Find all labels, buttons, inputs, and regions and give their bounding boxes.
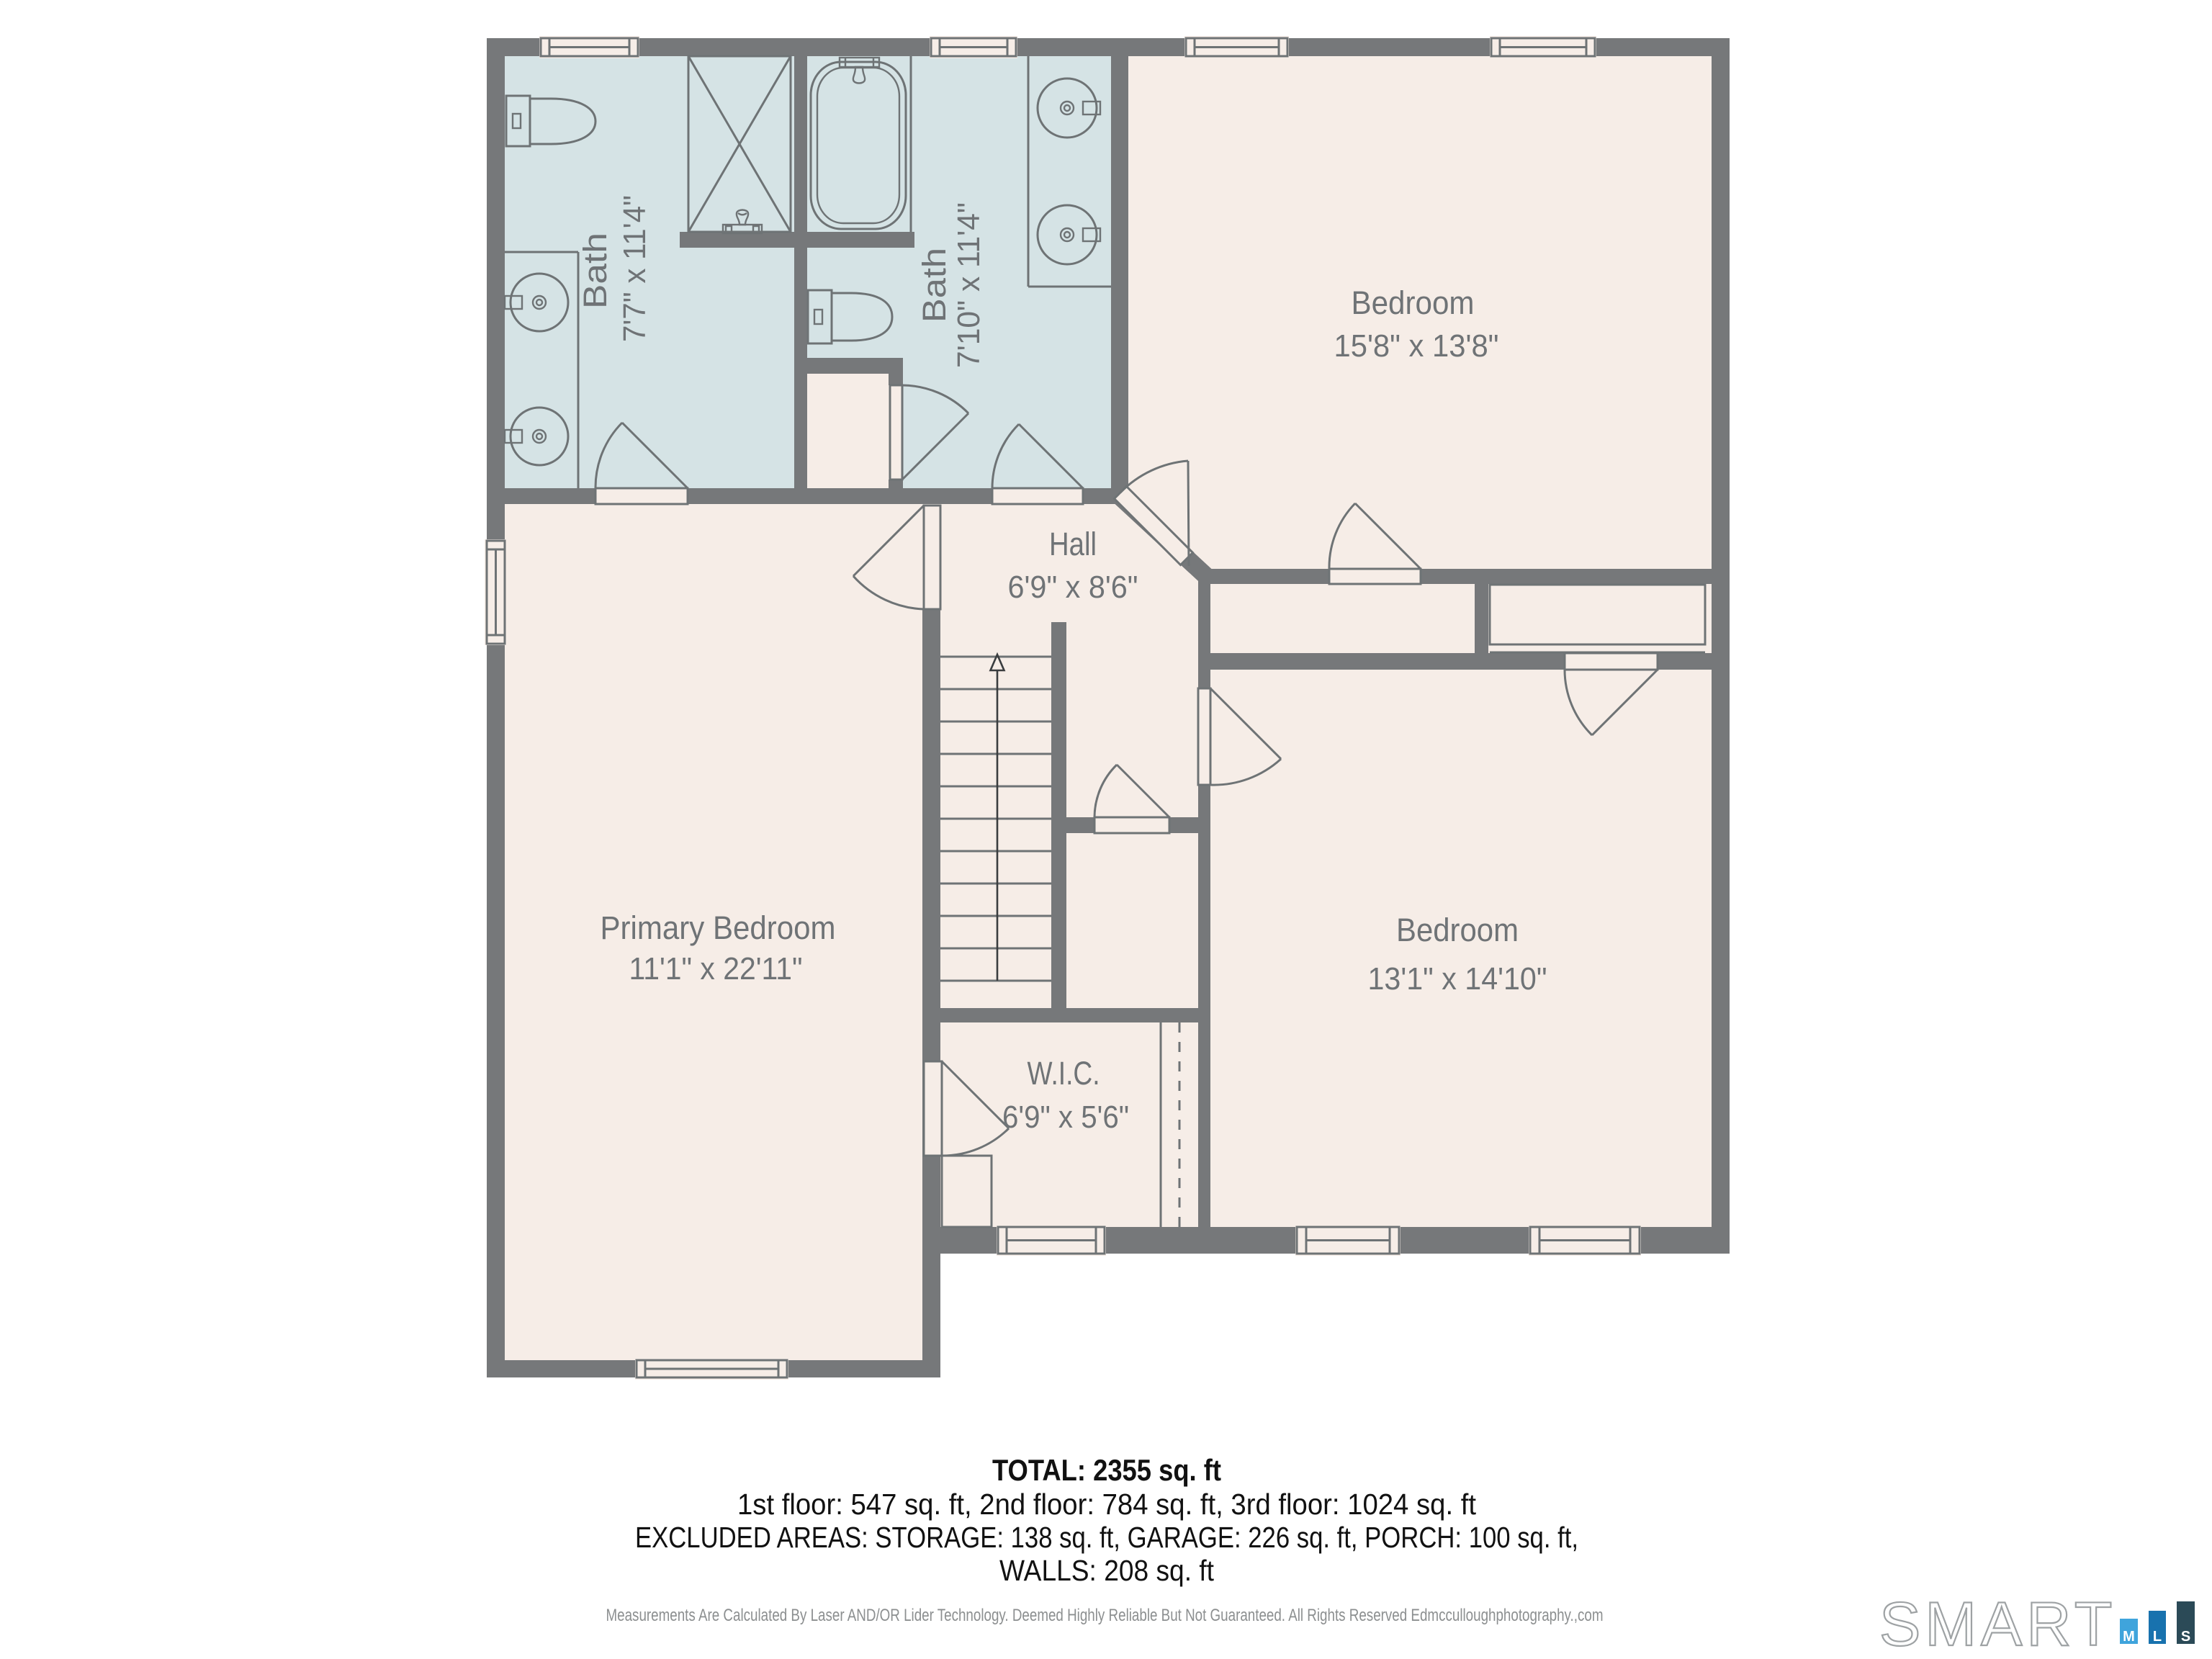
svg-text:13'1" x 14'10": 13'1" x 14'10" [1368,961,1547,997]
svg-text:1st floor: 547 sq. ft, 2nd flo: 1st floor: 547 sq. ft, 2nd floor: 784 sq… [737,1488,1477,1521]
svg-text:Primary Bedroom: Primary Bedroom [601,909,836,946]
svg-text:L: L [2153,1629,2162,1645]
svg-text:Bath: Bath [577,233,613,309]
svg-text:WALLS: 208 sq. ft: WALLS: 208 sq. ft [999,1554,1215,1587]
svg-text:EXCLUDED AREAS: STORAGE: 138 s: EXCLUDED AREAS: STORAGE: 138 sq. ft, GAR… [635,1521,1578,1554]
svg-text:TOTAL: 2355 sq. ft: TOTAL: 2355 sq. ft [992,1453,1221,1487]
svg-text:W.I.C.: W.I.C. [1028,1055,1100,1092]
svg-text:Bath: Bath [916,248,953,323]
svg-text:15'8" x 13'8": 15'8" x 13'8" [1334,328,1499,364]
svg-text:6'9" x 8'6": 6'9" x 8'6" [1008,570,1138,605]
svg-text:7'10" x 11'4": 7'10" x 11'4" [951,202,986,368]
svg-text:Bedroom: Bedroom [1396,912,1519,948]
svg-text:SMART: SMART [1879,1590,2116,1659]
svg-text:S: S [2181,1629,2190,1645]
svg-text:7'7" x 11'4": 7'7" x 11'4" [617,195,652,342]
svg-text:6'9" x 5'6": 6'9" x 5'6" [1002,1100,1129,1135]
svg-text:11'1" x 22'11": 11'1" x 22'11" [629,951,803,986]
svg-text:Bedroom: Bedroom [1352,284,1475,321]
svg-text:Hall: Hall [1049,526,1097,562]
svg-text:Measurements Are Calculated By: Measurements Are Calculated By Laser AND… [606,1606,1604,1625]
svg-text:M: M [2123,1629,2135,1645]
